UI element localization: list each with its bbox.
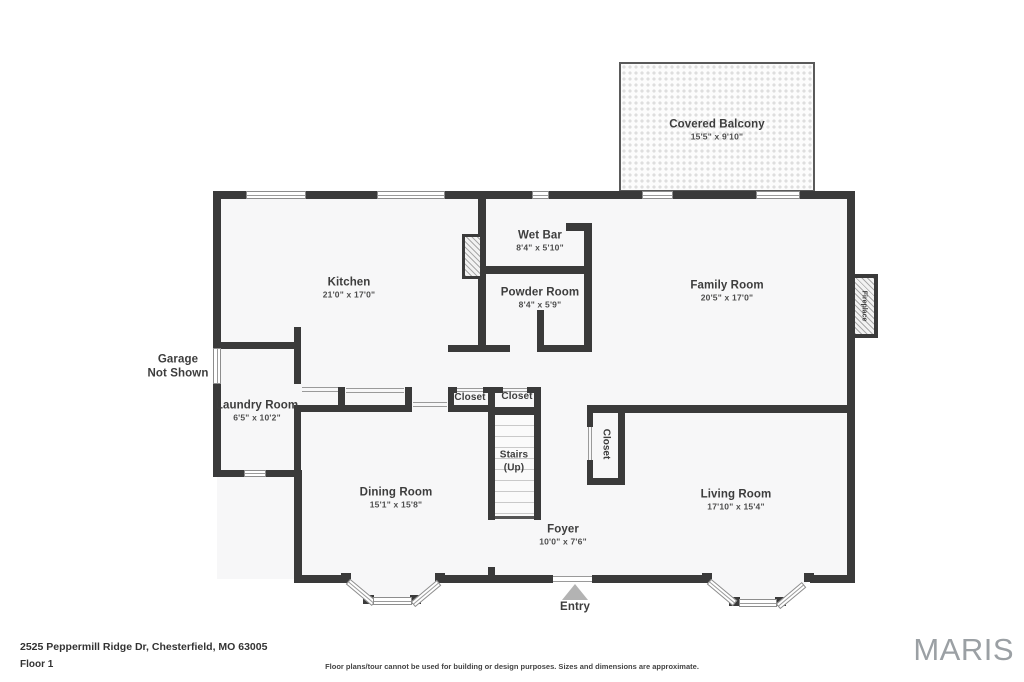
- wall-bottom-1: [294, 575, 348, 583]
- bay-window: [373, 597, 412, 605]
- room-label-stairs: Stairs (Up): [500, 450, 528, 475]
- room-label-family-room: Family Room 20'5" x 17'0": [690, 279, 763, 304]
- wall-powder-bottom-right: [538, 345, 592, 352]
- vent-window: [244, 470, 266, 477]
- room-name: Laundry Room: [216, 399, 298, 413]
- room-dims: 6'5" x 10'2": [216, 413, 298, 424]
- room-label-foyer: Foyer 10'0" x 7'6": [539, 523, 587, 548]
- wall-bottom-4: [810, 575, 855, 583]
- window: [642, 191, 673, 199]
- window: [213, 348, 221, 384]
- entry-jamb-left: [545, 575, 553, 583]
- room-name: Powder Room: [501, 286, 579, 300]
- garage-note-line2: Not Shown: [148, 367, 209, 381]
- garage-note: Garage Not Shown: [148, 353, 209, 382]
- room-label-dining: Dining Room 15'1" x 15'8": [360, 486, 433, 511]
- wall-foyer-stub: [488, 567, 495, 577]
- room-name: Dining Room: [360, 486, 433, 500]
- room-name: Wet Bar: [516, 229, 564, 243]
- room-dims: 10'0" x 7'6": [539, 537, 587, 548]
- fireplace-label: Fireplace: [861, 291, 868, 322]
- closet-c-door: [588, 427, 592, 460]
- room-name: Covered Balcony: [669, 118, 764, 132]
- room-dims: 20'5" x 17'0": [690, 293, 763, 304]
- room-label-closet-c: Closet: [601, 429, 612, 460]
- garage-note-line1: Garage: [148, 353, 209, 367]
- floor-plan: Fireplace Covered Balcony 15'5" x 9'10" …: [0, 0, 1024, 682]
- property-address: 2525 Peppermill Ridge Dr, Chesterfield, …: [20, 641, 267, 653]
- window-cap: [748, 191, 756, 199]
- closet-c-right: [618, 405, 625, 485]
- room-label-balcony: Covered Balcony 15'5" x 9'10": [669, 118, 764, 143]
- window: [532, 191, 549, 199]
- wall-hallway: [294, 405, 412, 412]
- room-name: Closet: [454, 392, 485, 405]
- bay-corner: [804, 573, 814, 582]
- wall-powder-stub: [537, 310, 544, 352]
- entry-arrow-icon: [562, 584, 588, 600]
- wall-hall-stub-b: [405, 387, 412, 412]
- wall-wetbar-powder-divider: [482, 266, 590, 274]
- cased-opening: [346, 388, 404, 393]
- room-label-laundry: Laundry Room 6'5" x 10'2": [216, 399, 298, 424]
- room-name: Closet: [501, 391, 532, 404]
- wall-family-bottom: [587, 405, 855, 413]
- cased-opening: [413, 402, 447, 407]
- closet-c-left-top: [587, 405, 593, 427]
- wall-left-upper: [213, 191, 221, 348]
- room-dims: 8'4" x 5'10": [516, 243, 564, 254]
- bay-window: [739, 599, 777, 607]
- wall-laundry-top: [213, 342, 301, 349]
- stairs-line1: Stairs: [500, 450, 528, 463]
- room-name: Entry: [560, 600, 590, 614]
- stairs-bottom-line: [495, 516, 534, 519]
- room-name: Living Room: [701, 488, 772, 502]
- floor-number-label: Floor 1: [20, 659, 53, 670]
- room-name: Family Room: [690, 279, 763, 293]
- wall-right: [847, 191, 855, 583]
- room-label-closet-a: Closet: [454, 392, 485, 405]
- window-cap: [673, 191, 681, 199]
- room-label-kitchen: Kitchen 21'0" x 17'0": [323, 276, 376, 301]
- chimney-hatch: [462, 234, 483, 279]
- stairs-top-bar: [488, 407, 541, 415]
- wall-hall-stub-a: [338, 387, 345, 412]
- room-label-living: Living Room 17'10" x 15'4": [701, 488, 772, 513]
- disclaimer-text: Floor plans/tour cannot be used for buil…: [325, 662, 699, 671]
- cased-opening: [302, 387, 338, 392]
- window: [246, 191, 306, 199]
- wall-powder-bottom-left: [448, 345, 510, 352]
- wall-dining-left: [294, 470, 302, 583]
- room-label-wet-bar: Wet Bar 8'4" x 5'10": [516, 229, 564, 254]
- wall-stub-kitchen-left: [294, 327, 301, 343]
- room-name: Foyer: [539, 523, 587, 537]
- room-dims: 8'4" x 5'9": [501, 300, 579, 311]
- window: [756, 191, 800, 199]
- maris-logo: MARIS: [913, 632, 1014, 668]
- stairs-line2: (Up): [500, 462, 528, 475]
- wall-wetbar-right-stub: [566, 223, 592, 231]
- entry-threshold: [553, 576, 592, 582]
- entry-jamb-right: [592, 575, 600, 583]
- room-dims: 21'0" x 17'0": [323, 290, 376, 301]
- window: [377, 191, 445, 199]
- room-name: Kitchen: [323, 276, 376, 290]
- wall-bottom-3: [600, 575, 708, 583]
- closet-c-left-bottom: [587, 460, 593, 485]
- room-label-closet-b: Closet: [501, 391, 532, 404]
- room-label-powder-room: Powder Room 8'4" x 5'9": [501, 286, 579, 311]
- room-dims: 15'1" x 15'8": [360, 500, 433, 511]
- room-dims: 17'10" x 15'4": [701, 502, 772, 513]
- entry-label: Entry: [560, 600, 590, 614]
- room-dims: 15'5" x 9'10": [669, 132, 764, 143]
- wall-wetbar-right: [584, 223, 592, 352]
